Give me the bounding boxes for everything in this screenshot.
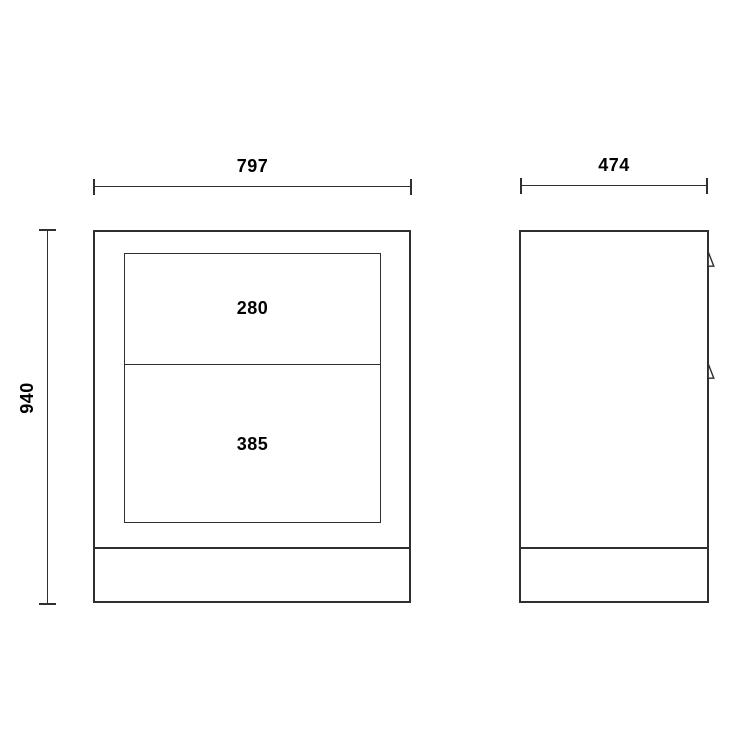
dimension-tick	[39, 603, 56, 605]
drawer-1: 280	[124, 253, 381, 364]
dimension-tick	[520, 178, 522, 194]
front-width-dimension-label: 797	[93, 155, 412, 177]
drawer-1-height-label: 280	[237, 298, 269, 319]
drawer-handle-icon	[707, 363, 716, 380]
side-view-plinth-line	[519, 547, 709, 549]
dimension-tick	[93, 179, 95, 195]
front-height-dimension-label: 940	[7, 378, 47, 418]
drawer-2-height-label: 385	[237, 434, 269, 455]
drawer-handle-icon	[707, 251, 716, 268]
dimension-tick	[39, 229, 56, 231]
front-view-plinth-line	[93, 547, 411, 549]
dimension-line	[520, 185, 708, 186]
dimension-line	[93, 186, 412, 187]
dimension-line	[47, 230, 48, 604]
front-height-dimension: 940	[20, 230, 60, 604]
dimension-tick	[410, 179, 412, 195]
side-depth-dimension: 474	[520, 154, 708, 198]
drawer-2: 385	[124, 365, 381, 523]
technical-drawing-canvas: 797 940 280 385 474	[0, 0, 750, 750]
side-depth-dimension-label: 474	[520, 154, 708, 176]
dimension-tick	[706, 178, 708, 194]
front-width-dimension: 797	[93, 155, 412, 199]
